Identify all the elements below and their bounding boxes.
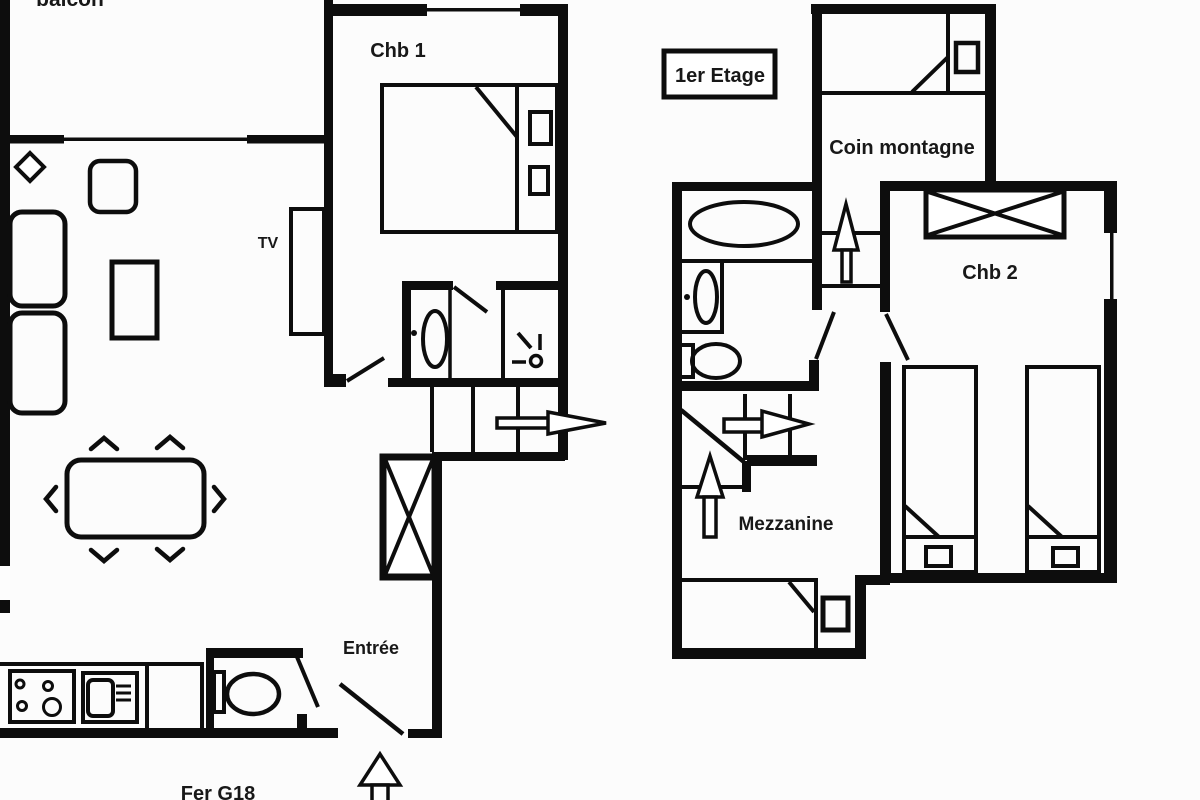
svg-text:1er Etage: 1er Etage xyxy=(675,65,765,87)
svg-text:Fer G18: Fer G18 xyxy=(181,783,255,800)
svg-text:Chb 2: Chb 2 xyxy=(962,262,1018,284)
svg-text:Coin montagne: Coin montagne xyxy=(829,137,975,159)
svg-text:Entrée: Entrée xyxy=(343,638,399,658)
svg-text:Mezzanine: Mezzanine xyxy=(738,514,833,535)
svg-text:TV: TV xyxy=(258,235,279,252)
svg-text:Chb 1: Chb 1 xyxy=(370,40,426,62)
svg-text:balcon: balcon xyxy=(36,0,104,11)
